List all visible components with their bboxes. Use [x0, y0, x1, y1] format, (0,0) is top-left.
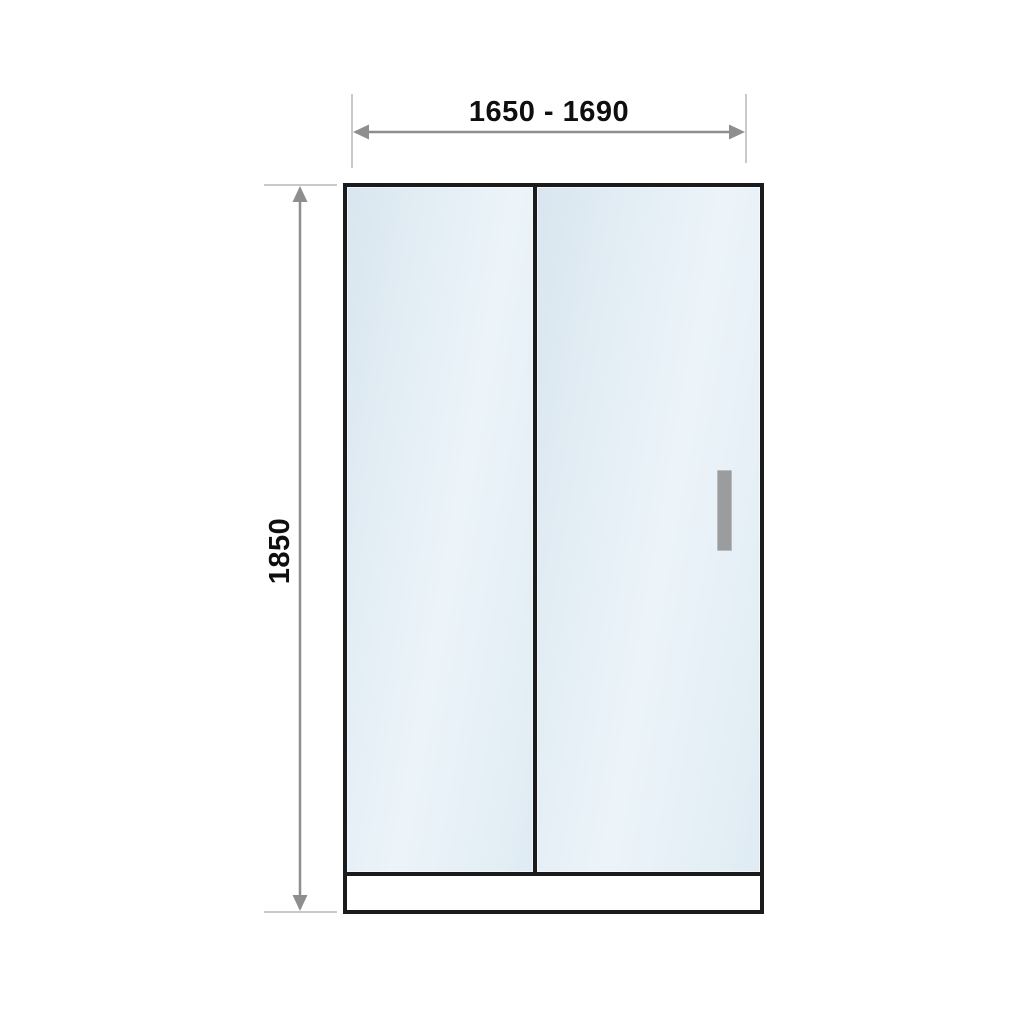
glass-panel-left: [347, 187, 533, 872]
shower-door-frame: [343, 183, 764, 914]
height-dimension-label: 1850: [265, 491, 295, 611]
width-dimension-label: 1650 - 1690: [352, 96, 746, 129]
height-arrowhead-bottom-icon: [293, 895, 308, 911]
door-handle: [717, 470, 732, 551]
height-arrowhead-top-icon: [293, 186, 308, 202]
dimension-diagram: 1650 - 1690 1850: [0, 0, 1024, 1024]
bottom-tray: [347, 872, 760, 910]
panel-divider: [533, 187, 537, 872]
